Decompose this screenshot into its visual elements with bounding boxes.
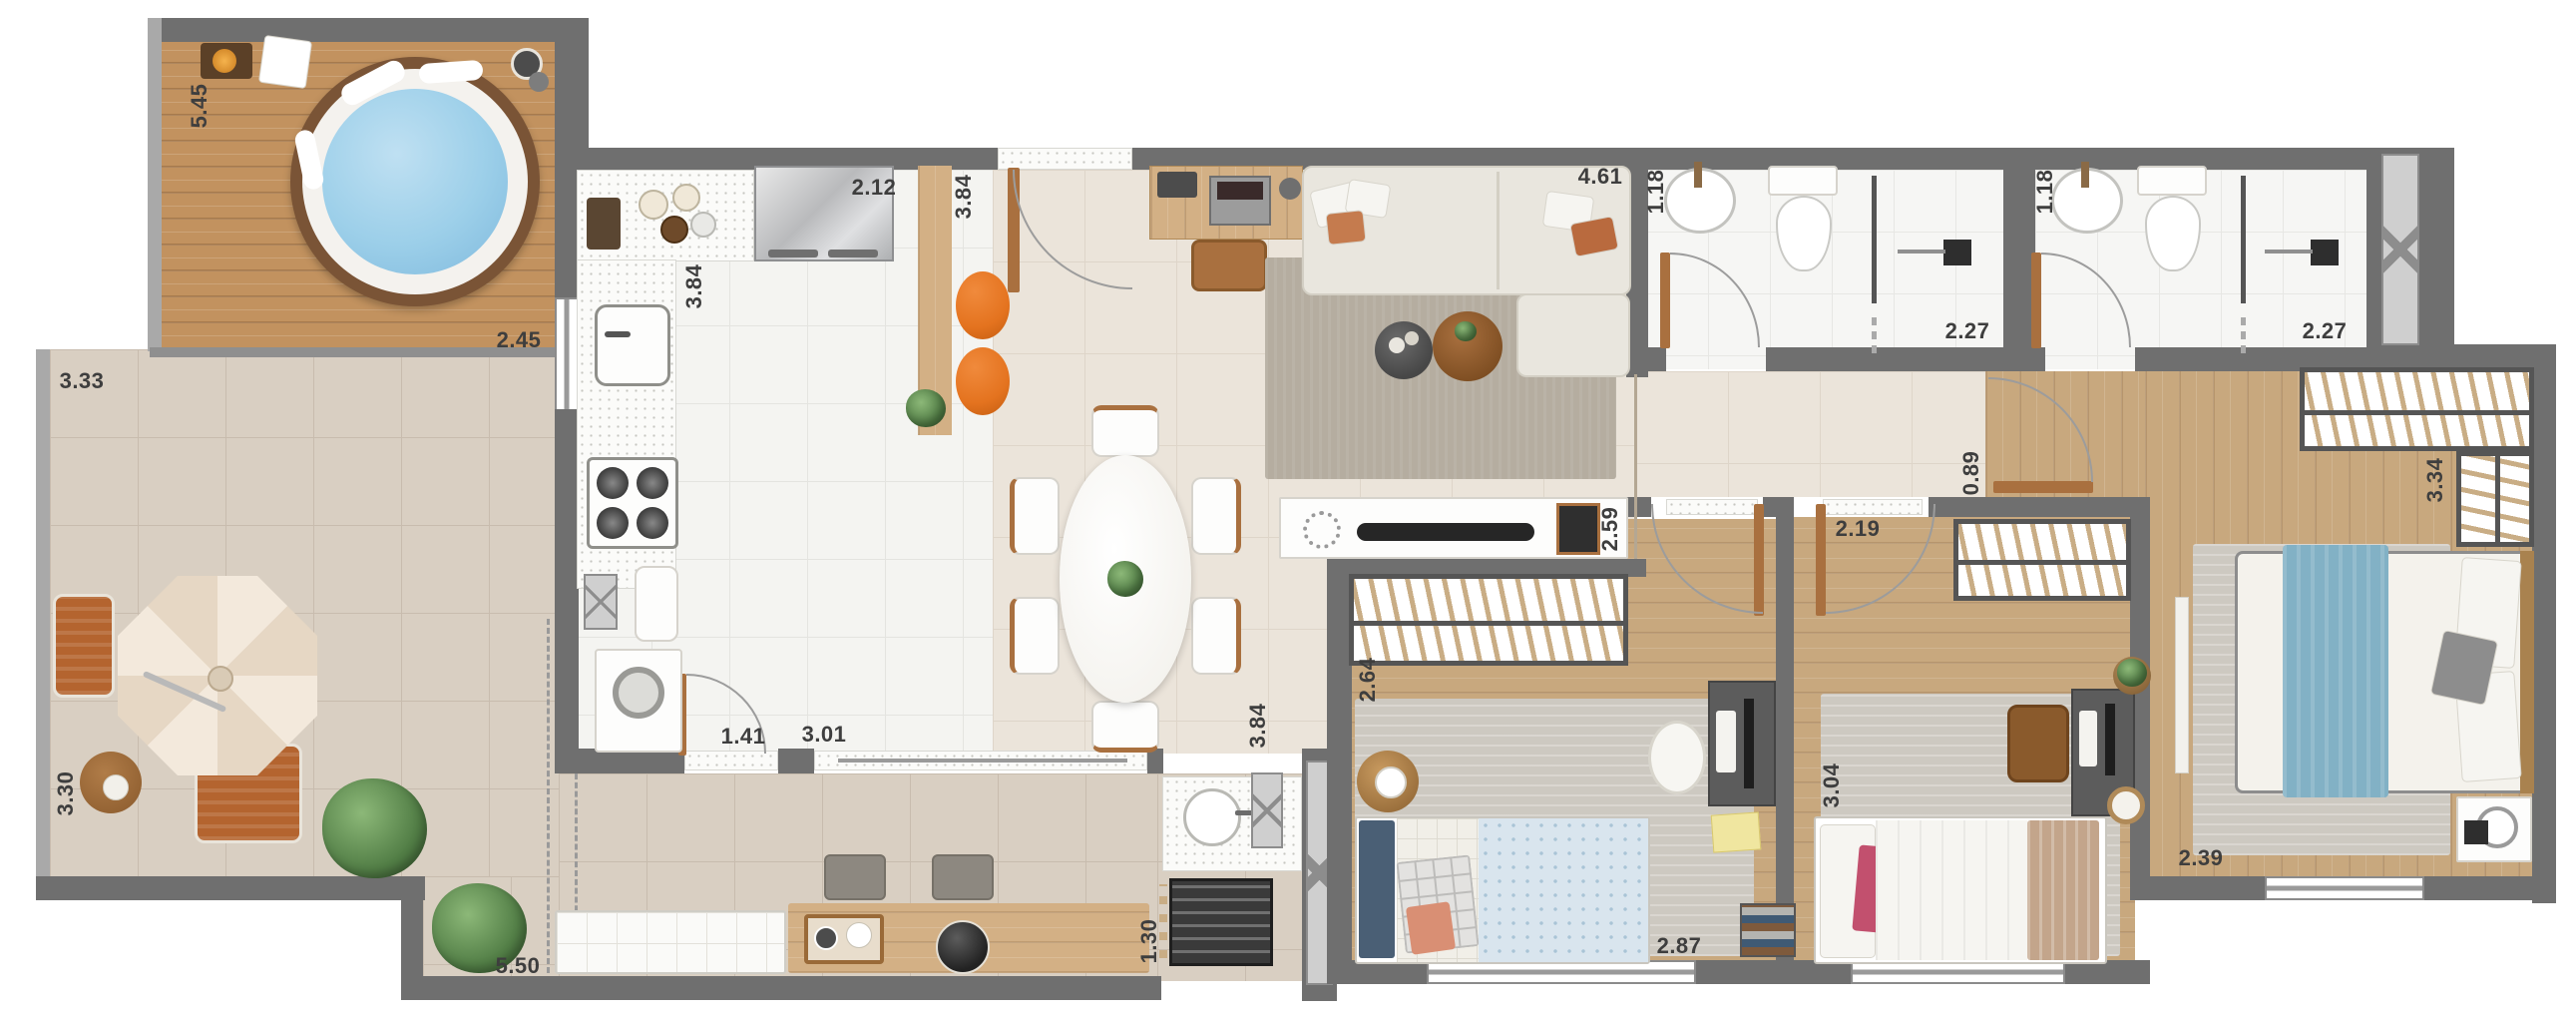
wall-deck-top bbox=[150, 18, 589, 42]
terrace-chair-2 bbox=[932, 854, 994, 900]
coffee-table-dark bbox=[1375, 321, 1433, 379]
barbecue-grill bbox=[1169, 878, 1273, 966]
bath1-shower-glass-gap bbox=[1872, 311, 1877, 353]
master-closet-side bbox=[2456, 451, 2534, 547]
deck-towel bbox=[258, 35, 312, 89]
laundry-door-sill bbox=[684, 751, 778, 770]
tv-speaker bbox=[1556, 503, 1600, 555]
wall-master-south-b bbox=[2424, 876, 2556, 900]
coffee-table-cup-1 bbox=[1389, 337, 1405, 353]
bath2-shower-glass-gap bbox=[2241, 311, 2246, 353]
bedroom1-duvet bbox=[1479, 818, 1648, 962]
dim-service-depth: 3.84 bbox=[1245, 704, 1271, 749]
grill-sink bbox=[1183, 788, 1241, 846]
stove-burner-1 bbox=[597, 467, 629, 499]
bar-plant bbox=[906, 389, 946, 427]
refrigerator-handle-2 bbox=[828, 250, 878, 257]
wall-bed1-south-b bbox=[1696, 960, 1796, 984]
kitchen-small-appliance bbox=[587, 198, 621, 250]
wall-terrace-south-left bbox=[36, 876, 425, 900]
bedroom2-closet bbox=[1953, 519, 2131, 601]
lounger-1 bbox=[53, 594, 115, 698]
bar-stool-1 bbox=[956, 271, 1010, 339]
sliding-door-track bbox=[838, 759, 1127, 763]
dim-bath1-width: 1.18 bbox=[1643, 170, 1669, 215]
stove-burner-2 bbox=[637, 467, 668, 499]
bath2-shower-glass bbox=[2241, 176, 2246, 303]
bedroom1-closet-rail bbox=[1354, 621, 1623, 626]
bath1-shower-head bbox=[1943, 240, 1971, 265]
stove-burner-4 bbox=[637, 507, 668, 539]
floor-plan: 5.45 2.45 3.33 3.30 2.12 3.84 3.84 3.84 … bbox=[0, 0, 2576, 1022]
coffee-table-plant bbox=[1455, 321, 1477, 341]
bedroom1-monitor bbox=[1744, 699, 1754, 788]
parapet-terrace-left bbox=[36, 349, 50, 900]
dim-bedroom1-width: 2.87 bbox=[1657, 933, 1702, 959]
dining-chair-top bbox=[1091, 405, 1159, 457]
bath1-toilet-tank bbox=[1768, 166, 1838, 196]
bedroom1-pink-throw bbox=[1406, 901, 1456, 955]
hot-tub-water bbox=[322, 89, 508, 274]
dim-terrace-length: 3.30 bbox=[53, 771, 79, 816]
dim-deck-width: 2.45 bbox=[497, 327, 542, 353]
wall-bath-bottom-a bbox=[1626, 347, 1666, 371]
bedroom2-door-leaf bbox=[1816, 504, 1826, 616]
dim-bedroom1-depth: 2.64 bbox=[1355, 658, 1381, 703]
deck-lantern-candle bbox=[213, 49, 236, 73]
bedroom1-pillow bbox=[1359, 820, 1395, 958]
wall-kitchen-west-a bbox=[555, 170, 579, 299]
master-bed-runner bbox=[2283, 545, 2388, 797]
bedroom2-desk-plant bbox=[2117, 659, 2147, 687]
master-closet-top bbox=[2300, 367, 2534, 451]
wall-bath-bottom-b bbox=[1766, 347, 2045, 371]
bath1-shower-arm bbox=[1898, 250, 1945, 254]
bar-stool-2 bbox=[956, 347, 1010, 415]
bath1-door-leaf bbox=[1660, 253, 1670, 348]
office-laptop-screen bbox=[1217, 182, 1263, 200]
dining-centerpiece bbox=[1107, 561, 1143, 597]
dim-bath1-length: 2.27 bbox=[1945, 318, 1990, 344]
stove-burner-3 bbox=[597, 507, 629, 539]
bedroom2-closet-rail bbox=[1958, 560, 2126, 565]
bath2-toilet-tank bbox=[2137, 166, 2207, 196]
kitchen-cup-3 bbox=[690, 212, 716, 238]
dim-kitchen-depth: 3.84 bbox=[681, 264, 707, 309]
dim-closet-length: 3.34 bbox=[2422, 458, 2448, 503]
bedroom1-notepad bbox=[1711, 811, 1762, 852]
dim-living-width: 4.61 bbox=[1578, 164, 1623, 190]
bedroom2-monitor bbox=[2105, 704, 2115, 775]
wall-bed1-north-b bbox=[1763, 497, 1777, 517]
bedroom1-closet bbox=[1349, 574, 1628, 666]
dim-terrace-bottom-length: 5.50 bbox=[496, 953, 541, 979]
terrace-side-table-cup bbox=[103, 774, 129, 800]
master-headboard bbox=[2520, 551, 2534, 793]
bath1-shower-glass bbox=[1872, 176, 1877, 303]
washing-machine-door bbox=[613, 667, 664, 719]
coffee-table-cup-2 bbox=[1405, 331, 1419, 345]
projection-line-1 bbox=[547, 619, 550, 973]
office-organizer bbox=[1157, 172, 1197, 198]
sofa-seam bbox=[1497, 172, 1500, 289]
master-window bbox=[2265, 876, 2424, 900]
master-bench bbox=[2175, 597, 2189, 773]
dim-terrace-width: 3.33 bbox=[60, 368, 105, 394]
dim-entry-depth: 3.84 bbox=[951, 175, 977, 220]
master-closet-side-rail bbox=[2495, 456, 2500, 542]
wall-terrace-south bbox=[401, 976, 1161, 1000]
wall-bed1-north-a bbox=[1626, 497, 1651, 517]
terrace-plate bbox=[936, 920, 990, 974]
dining-chair-left-2 bbox=[1010, 597, 1060, 675]
bedroom2-desk-chair bbox=[2007, 705, 2069, 782]
floor-transition-line bbox=[1634, 374, 1637, 559]
dim-bedroom2-depth: 3.04 bbox=[1819, 764, 1845, 808]
kitchen-sink bbox=[595, 304, 670, 386]
master-closet-top-rail bbox=[2305, 410, 2529, 415]
master-door-leaf bbox=[1993, 481, 2093, 493]
television bbox=[1357, 523, 1534, 541]
wall-bed2-north bbox=[1929, 497, 2145, 517]
bedroom2-blanket bbox=[2027, 820, 2099, 960]
kitchen-cup-1 bbox=[639, 190, 668, 220]
sofa-chaise bbox=[1516, 293, 1630, 377]
dim-hall-width: 0.89 bbox=[1958, 451, 1984, 496]
office-chair bbox=[1191, 240, 1267, 291]
dim-kitchen-opening: 3.01 bbox=[802, 722, 847, 748]
duct-shaft-kitchen bbox=[584, 574, 618, 630]
kitchen-cup-2 bbox=[672, 184, 700, 212]
wall-master-east bbox=[2532, 344, 2556, 903]
dim-kitchen-counter: 2.12 bbox=[852, 175, 897, 201]
wall-bottom-b bbox=[778, 749, 814, 773]
deck-accessory-2 bbox=[529, 72, 549, 92]
bath2-shower-arm bbox=[2265, 250, 2313, 254]
tray-cup-1 bbox=[814, 926, 838, 950]
bath1-faucet bbox=[1694, 162, 1702, 188]
sofa-pillow-3-orange bbox=[1325, 210, 1366, 246]
kitchen-coffee-pot bbox=[660, 216, 688, 244]
dining-chair-left-1 bbox=[1010, 477, 1060, 555]
dining-chair-right-2 bbox=[1191, 597, 1241, 675]
bedroom1-books bbox=[1740, 903, 1796, 957]
master-closet-top-hangers bbox=[2305, 372, 2529, 446]
bath2-faucet bbox=[2081, 162, 2089, 188]
tv-console-wreath bbox=[1303, 511, 1341, 549]
terrace-plant-1 bbox=[322, 778, 427, 878]
dim-laundry-width: 1.41 bbox=[721, 724, 766, 750]
bath2-door-leaf bbox=[2031, 253, 2041, 348]
bedroom2-clock bbox=[2107, 786, 2145, 824]
office-accessory bbox=[1279, 178, 1301, 200]
laundry-tub bbox=[635, 566, 678, 642]
bedroom2-duvet bbox=[1876, 820, 2027, 960]
parapet-deck-left bbox=[148, 18, 162, 351]
kitchen-deck-window bbox=[555, 297, 579, 411]
bedroom1-lamp bbox=[1375, 766, 1407, 798]
dim-grill-width: 1.30 bbox=[1136, 919, 1162, 964]
dim-bedroom2-width: 2.19 bbox=[1836, 516, 1881, 542]
terrace-bench bbox=[555, 910, 786, 974]
dim-bath2-length: 2.27 bbox=[2303, 318, 2348, 344]
bedroom1-desk-chair bbox=[1648, 721, 1706, 794]
dining-chair-right-1 bbox=[1191, 477, 1241, 555]
dim-master-width: 2.39 bbox=[2179, 845, 2224, 871]
bath2-shower-head bbox=[2311, 240, 2339, 265]
dim-bath2-width: 1.18 bbox=[2032, 170, 2058, 215]
wall-master-south-a bbox=[2145, 876, 2265, 900]
duct-shaft-grill bbox=[1251, 772, 1283, 848]
refrigerator-handle-1 bbox=[768, 250, 818, 257]
bedroom2-laptop bbox=[2079, 711, 2097, 766]
wall-deck-right bbox=[555, 18, 589, 150]
entry-threshold bbox=[998, 148, 1132, 170]
dim-tv-wall: 2.59 bbox=[1597, 507, 1623, 552]
duct-shaft-baths bbox=[2381, 154, 2419, 345]
hallway-tile-floor bbox=[1636, 371, 1987, 497]
bedroom1-keyboard bbox=[1716, 711, 1736, 772]
bedroom1-closet-hangers bbox=[1354, 579, 1623, 661]
dining-chair-bottom bbox=[1091, 701, 1159, 753]
dim-deck-length: 5.45 bbox=[187, 84, 213, 129]
kitchen-sink-faucet bbox=[605, 331, 631, 337]
tray-cup-2 bbox=[846, 922, 872, 948]
master-nightstand-book bbox=[2464, 820, 2488, 844]
parasol-hub bbox=[208, 666, 233, 692]
wall-kitchen-west-b bbox=[555, 409, 579, 759]
terrace-chair-1 bbox=[824, 854, 886, 900]
